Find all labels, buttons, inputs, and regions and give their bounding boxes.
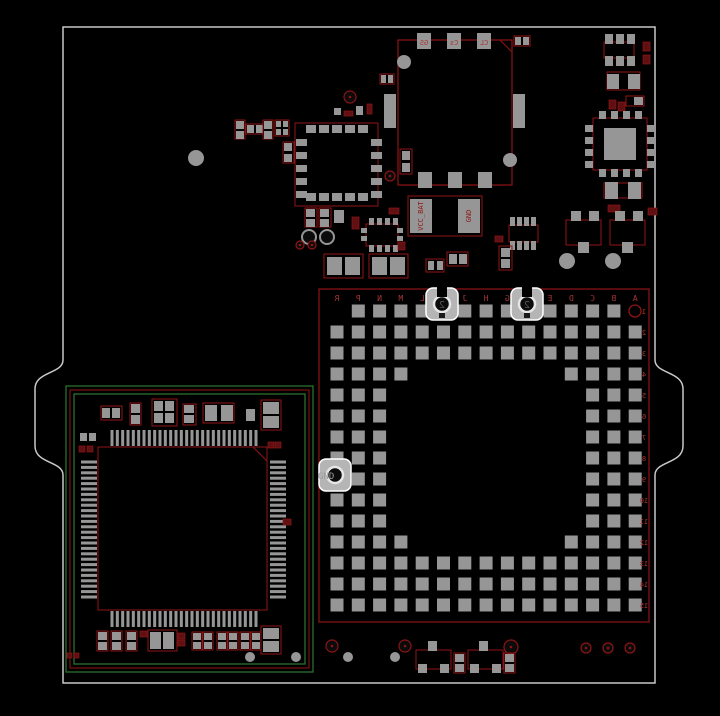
smd-pad[interactable]: [393, 245, 398, 252]
bga-pad[interactable]: [586, 578, 599, 591]
smd-pad[interactable]: [402, 151, 410, 160]
smd-pad[interactable]: [296, 178, 307, 185]
qfp-pad-top[interactable]: [249, 430, 252, 446]
smd-pad[interactable]: [112, 642, 121, 650]
qfp-pad-left[interactable]: [81, 520, 97, 523]
bga-pad[interactable]: [373, 557, 386, 570]
qfp-pad-top[interactable]: [207, 430, 210, 446]
qfp-pad-right[interactable]: [270, 547, 286, 550]
smd-pad[interactable]: [204, 642, 212, 649]
smd-pad[interactable]: [264, 121, 272, 129]
smd-pad[interactable]: [263, 416, 279, 428]
bga-pad[interactable]: [544, 578, 557, 591]
qfp-pad-bottom[interactable]: [169, 611, 172, 627]
bga-pad[interactable]: [352, 326, 365, 339]
bga-pad[interactable]: [501, 347, 514, 360]
smd-pad[interactable]: [284, 154, 292, 162]
qfp-pad-bottom[interactable]: [207, 611, 210, 627]
qfp-pad-left[interactable]: [81, 477, 97, 480]
bga-pad[interactable]: [629, 599, 642, 612]
smd-pad[interactable]: [524, 217, 529, 226]
qfp-pad-bottom[interactable]: [180, 611, 183, 627]
bga-pad[interactable]: [437, 578, 450, 591]
smd-pad[interactable]: [517, 217, 522, 226]
smd-pad[interactable]: [571, 211, 581, 221]
qfp-pad-top[interactable]: [212, 430, 215, 446]
smd-pad[interactable]: [334, 210, 344, 223]
smd-pad[interactable]: [634, 97, 643, 105]
qfp-pad-bottom[interactable]: [185, 611, 188, 627]
smd-pad[interactable]: [585, 161, 593, 168]
smd-pad[interactable]: [371, 152, 382, 159]
qfp-pad-right[interactable]: [270, 552, 286, 555]
smd-pad-small[interactable]: [643, 42, 650, 51]
smd-pad[interactable]: [369, 245, 374, 252]
smd-pad[interactable]: [356, 106, 363, 115]
qfp-pad-top[interactable]: [159, 430, 162, 446]
bga-pad[interactable]: [416, 347, 429, 360]
qfp-pad-bottom[interactable]: [196, 611, 199, 627]
bga-pad[interactable]: [607, 578, 620, 591]
qfp-pad-left[interactable]: [81, 563, 97, 566]
smd-pad[interactable]: [647, 149, 655, 156]
smd-pad[interactable]: [449, 254, 457, 264]
rf-module-pad[interactable]: [384, 94, 396, 128]
bga-pad[interactable]: [331, 389, 344, 402]
bga-pad[interactable]: [394, 347, 407, 360]
bga-pad[interactable]: [373, 305, 386, 318]
smd-pad[interactable]: [241, 642, 249, 649]
bga-pad[interactable]: [586, 431, 599, 444]
smd-pad[interactable]: [127, 632, 136, 640]
bga-pad[interactable]: [352, 494, 365, 507]
smd-pad[interactable]: [247, 125, 254, 133]
smd-pad[interactable]: [193, 633, 201, 640]
bga-pad[interactable]: [373, 410, 386, 423]
smd-pad[interactable]: [371, 178, 382, 185]
bga-pad[interactable]: [586, 452, 599, 465]
bga-pad[interactable]: [629, 536, 642, 549]
qfp-pad-right[interactable]: [270, 498, 286, 501]
smd-pad[interactable]: [334, 108, 341, 115]
smd-pad-small[interactable]: [178, 640, 185, 646]
smd-pad[interactable]: [131, 415, 140, 424]
rf-module-pad[interactable]: [513, 94, 525, 128]
bga-pad[interactable]: [607, 368, 620, 381]
smd-pad-small[interactable]: [344, 111, 353, 116]
bga-pad[interactable]: [607, 389, 620, 402]
qfp-pad-left[interactable]: [81, 569, 97, 572]
smd-pad[interactable]: [150, 632, 161, 649]
bga-pad[interactable]: [565, 305, 578, 318]
qfp-pad-bottom[interactable]: [201, 611, 204, 627]
smd-pad[interactable]: [455, 664, 464, 672]
bga-pad[interactable]: [522, 347, 535, 360]
bga-pad[interactable]: [586, 557, 599, 570]
smd-pad[interactable]: [647, 125, 655, 132]
qfp-pad-right[interactable]: [270, 542, 286, 545]
bga-pad[interactable]: [586, 347, 599, 360]
smd-pad[interactable]: [80, 433, 87, 441]
bga-pad[interactable]: [480, 578, 493, 591]
qfp-pad-top[interactable]: [233, 430, 236, 446]
qfp-pad-top[interactable]: [148, 430, 151, 446]
qfp-pad-left[interactable]: [81, 493, 97, 496]
smd-pad[interactable]: [515, 37, 521, 45]
smd-pad[interactable]: [332, 193, 342, 201]
bga-pad[interactable]: [607, 557, 620, 570]
bga-pad[interactable]: [394, 599, 407, 612]
qfp-pad-left[interactable]: [81, 509, 97, 512]
bga-pad[interactable]: [565, 578, 578, 591]
smd-pad[interactable]: [455, 654, 464, 662]
qfp-pad-bottom[interactable]: [217, 611, 220, 627]
smd-pad-small[interactable]: [283, 519, 291, 525]
bga-pad[interactable]: [373, 389, 386, 402]
smd-pad[interactable]: [501, 259, 510, 268]
smd-pad[interactable]: [371, 139, 382, 146]
bga-pad[interactable]: [586, 494, 599, 507]
bga-pad[interactable]: [607, 494, 620, 507]
qfp-pad-right[interactable]: [270, 509, 286, 512]
qfp-pad-top[interactable]: [217, 430, 220, 446]
bga-pad[interactable]: [394, 326, 407, 339]
qfp-pad-left[interactable]: [81, 579, 97, 582]
bga-pad[interactable]: [544, 557, 557, 570]
smd-pad[interactable]: [112, 408, 120, 418]
bga-pad[interactable]: [629, 494, 642, 507]
bga-pad[interactable]: [544, 305, 557, 318]
bga-pad[interactable]: [331, 557, 344, 570]
qfp-pad-top[interactable]: [228, 430, 231, 446]
bga-pad[interactable]: [607, 305, 620, 318]
qfp-pad-bottom[interactable]: [244, 611, 247, 627]
smd-pad[interactable]: [470, 664, 479, 673]
smd-pad[interactable]: [585, 137, 593, 144]
smd-pad[interactable]: [381, 75, 386, 83]
bga-pad[interactable]: [544, 326, 557, 339]
qfp-pad-top[interactable]: [137, 430, 140, 446]
qfp-pad-left[interactable]: [81, 596, 97, 599]
qfp-pad-left[interactable]: [81, 461, 97, 464]
smd-pad[interactable]: [241, 633, 249, 640]
smd-pad[interactable]: [611, 111, 618, 119]
smd-pad[interactable]: [165, 413, 174, 423]
qfp-pad-bottom[interactable]: [143, 611, 146, 627]
smd-pad[interactable]: [585, 149, 593, 156]
smd-pad[interactable]: [98, 632, 107, 640]
qfp-pad-right[interactable]: [270, 596, 286, 599]
qfp-pad-bottom[interactable]: [148, 611, 151, 627]
bga-pad[interactable]: [586, 536, 599, 549]
smd-pad[interactable]: [319, 125, 329, 133]
bga-pad[interactable]: [480, 557, 493, 570]
bga-pad[interactable]: [629, 431, 642, 444]
smd-pad[interactable]: [623, 111, 630, 119]
smd-pad-small[interactable]: [268, 442, 274, 448]
bga-pad[interactable]: [373, 599, 386, 612]
bga-pad[interactable]: [352, 557, 365, 570]
smd-pad[interactable]: [616, 56, 624, 66]
qfp-pad-top[interactable]: [223, 430, 226, 446]
bga-pad[interactable]: [480, 347, 493, 360]
bga-pad[interactable]: [331, 326, 344, 339]
qfp-pad-bottom[interactable]: [255, 611, 258, 627]
bga-pad[interactable]: [565, 326, 578, 339]
pcb-layout-drawing[interactable]: RPNMLKJHGFEDCBA123456789101112131415GSCs…: [0, 0, 720, 716]
qfp-pad-top[interactable]: [127, 430, 130, 446]
qfp-pad-left[interactable]: [81, 498, 97, 501]
bga-pad[interactable]: [607, 347, 620, 360]
qfp-pad-right[interactable]: [270, 504, 286, 507]
smd-pad[interactable]: [605, 182, 618, 199]
via[interactable]: [559, 253, 575, 269]
qfp-pad-left[interactable]: [81, 525, 97, 528]
smd-pad[interactable]: [418, 664, 427, 673]
bga-pad[interactable]: [607, 515, 620, 528]
rf-module-pad[interactable]: [448, 172, 462, 188]
bga-pad[interactable]: [522, 557, 535, 570]
bga-pad[interactable]: [586, 305, 599, 318]
qfp-pad-right[interactable]: [270, 531, 286, 534]
qfp-pad-right[interactable]: [270, 585, 286, 588]
bga-pad[interactable]: [586, 368, 599, 381]
bga-pad[interactable]: [501, 578, 514, 591]
smd-pad[interactable]: [204, 633, 212, 640]
bga-pad[interactable]: [373, 536, 386, 549]
qfp-pad-right[interactable]: [270, 482, 286, 485]
smd-pad[interactable]: [628, 182, 641, 199]
bga-pad[interactable]: [522, 578, 535, 591]
qfp-pad-right[interactable]: [270, 579, 286, 582]
bga-pad[interactable]: [607, 536, 620, 549]
bga-pad[interactable]: [607, 599, 620, 612]
smd-pad[interactable]: [372, 257, 387, 275]
smd-pad[interactable]: [332, 125, 342, 133]
qfp-pad-left[interactable]: [81, 590, 97, 593]
qfp-pad-right[interactable]: [270, 515, 286, 518]
smd-pad[interactable]: [276, 121, 281, 127]
smd-pad[interactable]: [229, 633, 237, 640]
qfp-pad-left[interactable]: [81, 488, 97, 491]
smd-pad[interactable]: [605, 34, 613, 44]
bga-pad[interactable]: [331, 410, 344, 423]
bga-pad[interactable]: [458, 326, 471, 339]
smd-pad-small[interactable]: [648, 208, 657, 215]
smd-pad[interactable]: [184, 415, 194, 423]
smd-pad[interactable]: [361, 228, 367, 233]
smd-pad[interactable]: [296, 139, 307, 146]
smd-pad[interactable]: [501, 248, 510, 257]
qfp-pad-bottom[interactable]: [228, 611, 231, 627]
smd-pad[interactable]: [578, 242, 589, 253]
bga-pad[interactable]: [629, 326, 642, 339]
bga-pad[interactable]: [458, 599, 471, 612]
qfp-pad-bottom[interactable]: [116, 611, 119, 627]
smd-pad[interactable]: [345, 257, 360, 275]
qfp-pad-left[interactable]: [81, 574, 97, 577]
smd-pad[interactable]: [622, 242, 633, 253]
qfp-pad-left[interactable]: [81, 542, 97, 545]
smd-pad[interactable]: [505, 654, 514, 662]
pcb-editor-canvas[interactable]: RPNMLKJHGFEDCBA123456789101112131415GSCs…: [0, 0, 720, 716]
bga-pad[interactable]: [522, 326, 535, 339]
smd-pad[interactable]: [320, 219, 329, 227]
via[interactable]: [605, 253, 621, 269]
smd-pad[interactable]: [361, 236, 367, 241]
bga-pad[interactable]: [586, 599, 599, 612]
bga-pad[interactable]: [607, 326, 620, 339]
smd-pad[interactable]: [371, 191, 382, 198]
smd-pad[interactable]: [369, 218, 374, 225]
smd-pad[interactable]: [205, 405, 217, 421]
smd-pad[interactable]: [402, 163, 410, 172]
smd-pad[interactable]: [112, 632, 121, 640]
bga-pad[interactable]: [501, 599, 514, 612]
qfp-pad-left[interactable]: [81, 536, 97, 539]
bga-pad[interactable]: [607, 410, 620, 423]
bga-pad[interactable]: [394, 557, 407, 570]
smd-pad[interactable]: [284, 143, 292, 151]
qfp-pad-bottom[interactable]: [223, 611, 226, 627]
bga-pad[interactable]: [331, 599, 344, 612]
smd-pad-small[interactable]: [178, 633, 185, 639]
smd-pad-small[interactable]: [389, 208, 399, 214]
smd-pad-small[interactable]: [398, 242, 405, 250]
smd-pad-small[interactable]: [643, 55, 650, 64]
qfp-pad-top[interactable]: [191, 430, 194, 446]
smd-pad[interactable]: [523, 37, 529, 45]
smd-pad[interactable]: [252, 642, 260, 649]
smd-pad-small[interactable]: [275, 442, 281, 448]
smd-pad-small[interactable]: [352, 217, 359, 229]
smd-pad[interactable]: [256, 125, 263, 133]
smd-pad[interactable]: [397, 228, 403, 233]
bga-pad[interactable]: [458, 347, 471, 360]
qfp-pad-top[interactable]: [175, 430, 178, 446]
smd-pad-small[interactable]: [67, 653, 72, 658]
qfp-pad-top[interactable]: [116, 430, 119, 446]
smd-pad[interactable]: [377, 218, 382, 225]
bga-pad[interactable]: [607, 452, 620, 465]
qfp-pad-bottom[interactable]: [212, 611, 215, 627]
bga-pad[interactable]: [629, 515, 642, 528]
bga-pad[interactable]: [501, 557, 514, 570]
qfp-pad-bottom[interactable]: [159, 611, 162, 627]
qfp-pad-bottom[interactable]: [127, 611, 130, 627]
bga-pad[interactable]: [416, 578, 429, 591]
mounting-hole[interactable]: [188, 150, 204, 166]
bga-pad[interactable]: [331, 515, 344, 528]
bga-pad[interactable]: [352, 410, 365, 423]
bga-pad[interactable]: [373, 578, 386, 591]
smd-pad-small[interactable]: [79, 446, 85, 452]
smd-pad-small[interactable]: [609, 100, 616, 109]
smd-pad[interactable]: [437, 261, 443, 270]
smd-pad[interactable]: [283, 129, 288, 135]
smd-pad[interactable]: [264, 131, 272, 139]
smd-pad[interactable]: [531, 217, 536, 226]
smd-pad[interactable]: [397, 236, 403, 241]
bga-pad[interactable]: [458, 578, 471, 591]
smd-pad[interactable]: [635, 169, 642, 177]
bga-pad[interactable]: [437, 347, 450, 360]
qfp-pad-left[interactable]: [81, 482, 97, 485]
qfp-pad-right[interactable]: [270, 536, 286, 539]
rf-module-corner-pad[interactable]: [397, 55, 411, 69]
rf-module-corner-pad[interactable]: [503, 153, 517, 167]
qfp-pad-bottom[interactable]: [249, 611, 252, 627]
smd-pad[interactable]: [605, 56, 613, 66]
bga-pad[interactable]: [544, 347, 557, 360]
bga-pad[interactable]: [586, 410, 599, 423]
smd-pad[interactable]: [524, 241, 529, 250]
bga-pad[interactable]: [629, 473, 642, 486]
qfp-pad-right[interactable]: [270, 563, 286, 566]
qfp-pad-top[interactable]: [196, 430, 199, 446]
smd-pad[interactable]: [393, 218, 398, 225]
smd-pad[interactable]: [218, 633, 226, 640]
smd-pad[interactable]: [236, 121, 244, 129]
smd-pad[interactable]: [517, 241, 522, 250]
bga-pad[interactable]: [458, 305, 471, 318]
bga-pad[interactable]: [352, 431, 365, 444]
bga-pad[interactable]: [629, 578, 642, 591]
smd-pad[interactable]: [358, 193, 368, 201]
qfp-pad-bottom[interactable]: [132, 611, 135, 627]
smd-pad[interactable]: [218, 642, 226, 649]
qfp-pad-right[interactable]: [270, 493, 286, 496]
smd-pad-small[interactable]: [367, 104, 372, 114]
bga-pad[interactable]: [586, 515, 599, 528]
bga-pad[interactable]: [437, 599, 450, 612]
bga-pad[interactable]: [565, 557, 578, 570]
bga-pad[interactable]: [629, 368, 642, 381]
smd-pad[interactable]: [479, 641, 488, 651]
bga-pad[interactable]: [607, 473, 620, 486]
smd-pad[interactable]: [428, 641, 437, 651]
qfp-pad-left[interactable]: [81, 585, 97, 588]
smd-pad[interactable]: [492, 664, 501, 673]
smd-pad[interactable]: [263, 628, 279, 639]
qfp-pad-right[interactable]: [270, 558, 286, 561]
smd-pad-small[interactable]: [618, 102, 625, 111]
bga-pad[interactable]: [331, 347, 344, 360]
bga-pad[interactable]: [501, 326, 514, 339]
smd-pad[interactable]: [296, 165, 307, 172]
qfp-pad-right[interactable]: [270, 461, 286, 464]
smd-pad[interactable]: [585, 125, 593, 132]
smd-pad-small[interactable]: [74, 653, 79, 658]
bga-pad[interactable]: [331, 578, 344, 591]
qfp-pad-left[interactable]: [81, 504, 97, 507]
qfp-pad-top[interactable]: [132, 430, 135, 446]
bga-pad[interactable]: [331, 536, 344, 549]
smd-pad[interactable]: [531, 241, 536, 250]
qfp-pad-top[interactable]: [255, 430, 258, 446]
bga-pad[interactable]: [586, 473, 599, 486]
via[interactable]: [343, 652, 353, 662]
bga-pad[interactable]: [352, 515, 365, 528]
bga-pad[interactable]: [629, 557, 642, 570]
rf-module-pad[interactable]: [478, 172, 492, 188]
bga-pad[interactable]: [352, 452, 365, 465]
qfp-pad-right[interactable]: [270, 466, 286, 469]
qfp-pad-top[interactable]: [111, 430, 114, 446]
bga-pad[interactable]: [458, 557, 471, 570]
smd-pad[interactable]: [635, 111, 642, 119]
smd-pad[interactable]: [647, 161, 655, 168]
